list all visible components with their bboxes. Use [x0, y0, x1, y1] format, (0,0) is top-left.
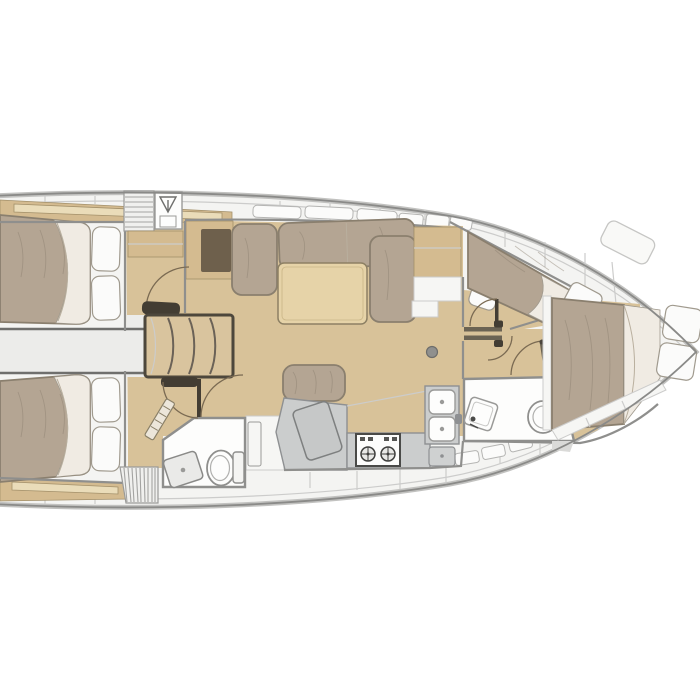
shelf-white [412, 301, 438, 317]
stove [356, 434, 400, 466]
companionway-steps [145, 315, 233, 377]
door-leaf [495, 299, 499, 326]
sideboard [414, 227, 461, 277]
floorplan-svg [0, 0, 700, 700]
drain [181, 468, 186, 473]
pillow [91, 427, 121, 472]
faucet [471, 417, 476, 422]
pillow [91, 227, 121, 272]
side-shelf [543, 296, 551, 430]
pillow [91, 378, 121, 423]
galley-sink [425, 386, 462, 444]
toilet [207, 451, 244, 486]
stern-hatch [120, 467, 158, 503]
pillow [91, 276, 121, 321]
settee-right-arm [370, 236, 416, 322]
chart-table-inset [201, 229, 231, 272]
salon-table [278, 263, 367, 324]
cabinet-white [414, 277, 461, 301]
yacht-floorplan [0, 0, 700, 700]
settee-left-arm [232, 224, 277, 295]
bench [283, 365, 345, 401]
door-leaf [197, 379, 201, 417]
aft-cabin-starboard [0, 371, 126, 501]
door-leaf [161, 377, 198, 387]
mast-post [427, 347, 438, 358]
